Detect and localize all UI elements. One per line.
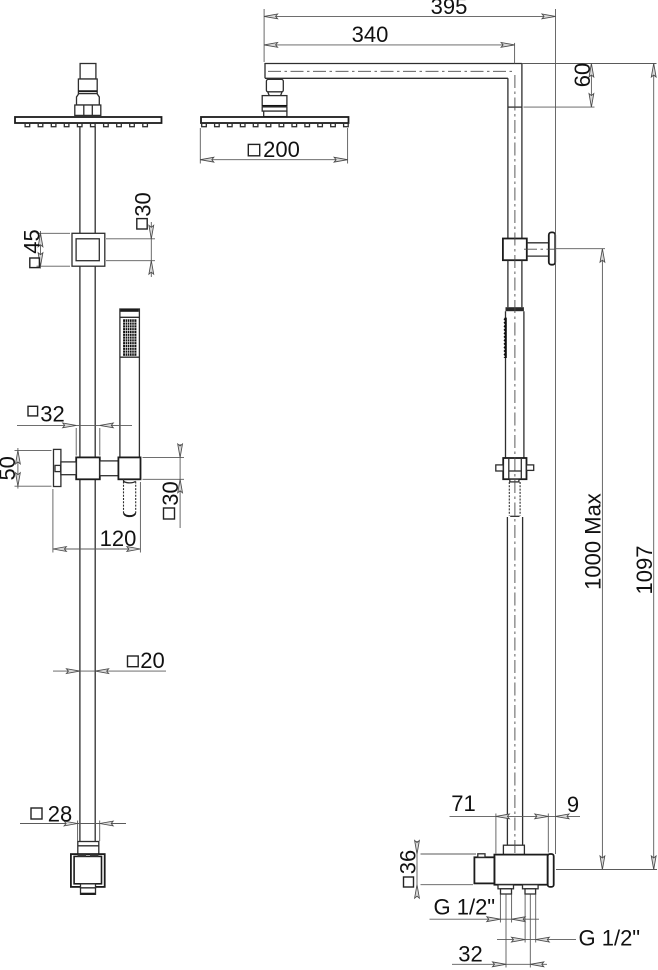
svg-text:G 1/2": G 1/2"	[579, 926, 641, 951]
svg-text:32: 32	[40, 402, 64, 427]
svg-text:20: 20	[140, 648, 164, 673]
svg-text:395: 395	[431, 0, 468, 19]
svg-text:30: 30	[158, 481, 183, 505]
svg-text:36: 36	[396, 850, 421, 874]
svg-text:28: 28	[48, 802, 72, 827]
svg-text:32: 32	[458, 942, 482, 967]
svg-text:30: 30	[131, 192, 156, 216]
svg-text:50: 50	[0, 456, 20, 480]
svg-text:200: 200	[263, 137, 300, 162]
svg-text:1000 Max: 1000 Max	[581, 493, 606, 590]
svg-text:45: 45	[20, 229, 45, 253]
svg-text:G 1/2": G 1/2"	[434, 895, 496, 920]
svg-text:60: 60	[570, 63, 595, 87]
svg-text:120: 120	[100, 526, 137, 551]
svg-text:340: 340	[352, 22, 389, 47]
svg-text:9: 9	[567, 792, 579, 817]
svg-text:1097: 1097	[632, 546, 657, 595]
svg-text:71: 71	[451, 791, 475, 816]
